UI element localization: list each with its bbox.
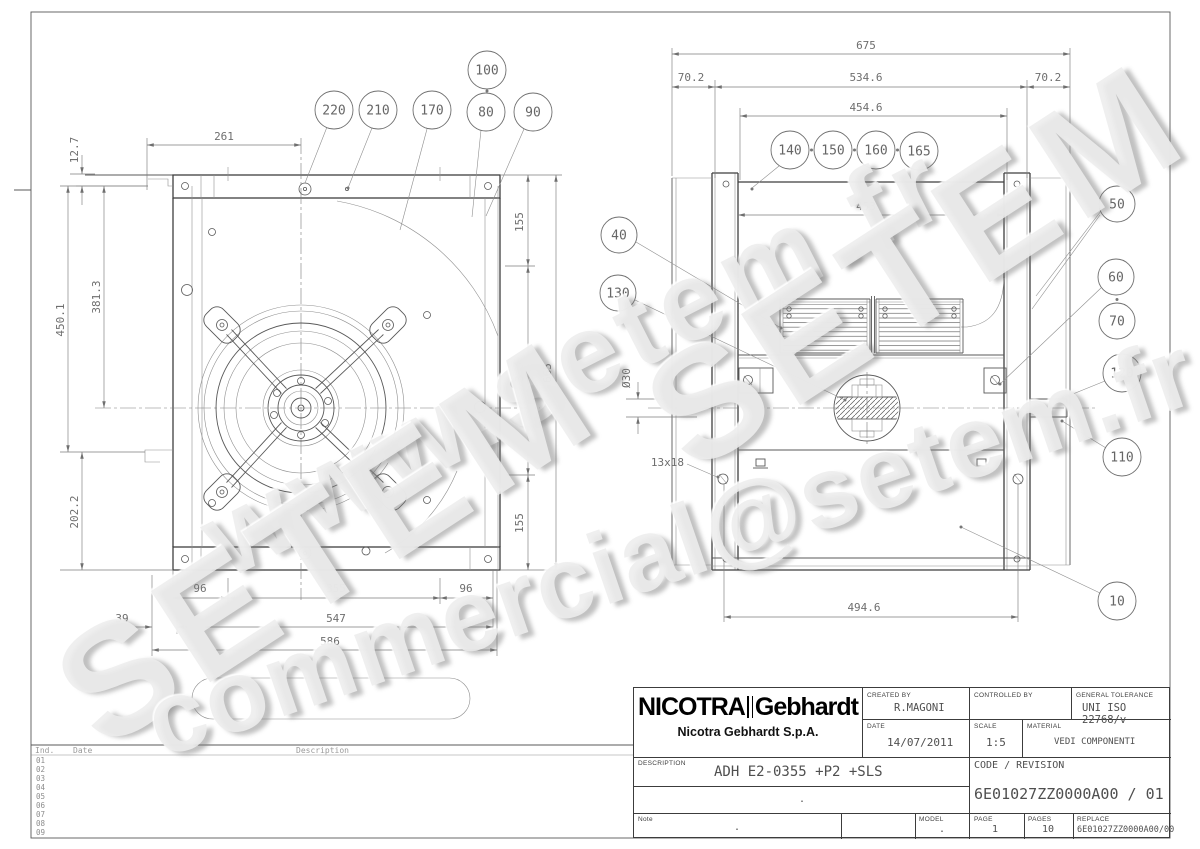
title-block: NICOTRAGebhardt Nicotra Gebhardt S.p.A. …: [633, 687, 1170, 838]
replace-value: 6E01027ZZ0000A00/00: [1077, 825, 1174, 835]
dim-534-6: 534.6: [849, 71, 882, 84]
svg-text:100: 100: [475, 64, 498, 79]
scale-label: SCALE: [974, 723, 997, 730]
dim-155-bottom: 155: [513, 513, 526, 533]
pages-label: PAGES: [1028, 816, 1051, 823]
dim-39: 39: [115, 612, 128, 625]
balloon-70: 70: [1099, 303, 1135, 339]
svg-text:10: 10: [1109, 595, 1125, 610]
svg-text:80: 80: [478, 106, 494, 121]
revision-row: 07: [36, 810, 45, 819]
balloon-90: 90: [514, 93, 552, 131]
dim-96-right: 96: [459, 582, 472, 595]
dim-12-7: 12.7: [68, 137, 81, 164]
dim-675: 675: [856, 39, 876, 52]
svg-text:130: 130: [606, 287, 629, 302]
date-value: 14/07/2011: [887, 736, 953, 749]
dim-494-6: 494.6: [847, 601, 880, 614]
dim-381-3: 381.3: [90, 280, 103, 313]
volute-arcs: [337, 201, 498, 553]
balloon-60: 60: [1098, 259, 1134, 295]
model-value: .: [939, 824, 945, 835]
front-view-balloons: 220 210 170 100 80 90: [305, 51, 552, 230]
balloon-160: 160: [857, 131, 895, 169]
pages-value: 10: [1042, 824, 1054, 835]
revision-row: 04: [36, 783, 45, 792]
dim-450-1: 450.1: [54, 303, 67, 336]
balloon-165: 165: [900, 132, 938, 170]
balloon-220: 220: [315, 91, 353, 129]
company-name: Nicotra Gebhardt S.p.A.: [634, 725, 862, 739]
dim-shaft-diameter: Ø30: [620, 368, 633, 388]
date-label: DATE: [867, 723, 885, 730]
dim-70-2-right: 70.2: [1035, 71, 1062, 84]
balloon-10: 10: [1098, 582, 1136, 620]
logo-primary: NICOTRA: [638, 693, 745, 721]
revision-row: 08: [36, 819, 45, 828]
revision-row: 01: [36, 756, 45, 765]
page-value: 1: [992, 824, 998, 835]
balloon-140: 140: [771, 131, 809, 169]
balloon-50: 50: [1099, 186, 1135, 222]
revision-row: 02: [36, 765, 45, 774]
svg-text:170: 170: [420, 104, 443, 119]
revision-row: 06: [36, 801, 45, 810]
material-label: MATERIAL: [1027, 723, 1061, 730]
dim-96-left: 96: [193, 582, 206, 595]
revision-header-ind: Ind.: [35, 746, 54, 755]
svg-text:50: 50: [1109, 198, 1125, 213]
code-label: CODE / REVISION: [974, 760, 1064, 771]
replace-label: REPLACE: [1077, 816, 1109, 823]
dim-261: 261: [214, 130, 234, 143]
revision-table: Ind. Date Description 01 02 03 04 05 06 …: [31, 745, 633, 838]
balloon-120: 120: [1103, 354, 1141, 392]
logo-divider: [747, 696, 753, 718]
label-stadium: [192, 678, 470, 719]
balloon-100: 100: [468, 51, 506, 89]
revision-row: 09: [36, 828, 45, 837]
svg-text:140: 140: [778, 144, 801, 159]
svg-text:165: 165: [907, 145, 930, 160]
description-line2: .: [799, 794, 805, 805]
code-value: 6E01027ZZ0000A00 / 01: [974, 785, 1164, 803]
dim-586: 586: [320, 635, 340, 648]
tolerance-label: GENERAL TOLERANCE: [1076, 692, 1153, 699]
dim-355-bottom: 355: [326, 582, 346, 595]
page-label: PAGE: [974, 816, 993, 823]
revision-row: 03: [36, 774, 45, 783]
balloon-130: 130: [600, 275, 636, 311]
description-label: DESCRIPTION: [638, 760, 686, 767]
scale-value: 1:5: [986, 736, 1006, 749]
created-by-value: R.MAGONI: [894, 702, 945, 714]
note-value: .: [734, 822, 740, 833]
svg-text:210: 210: [366, 104, 389, 119]
bearing-brackets: [739, 368, 1006, 393]
company-logo: NICOTRAGebhardt Nicotra Gebhardt S.p.A.: [634, 688, 862, 757]
revision-header-description: Description: [296, 746, 349, 755]
dim-665: 665: [541, 363, 554, 383]
panel-bolts: [182, 183, 492, 563]
balloon-210: 210: [359, 91, 397, 129]
svg-text:40: 40: [611, 229, 627, 244]
revision-row: 05: [36, 792, 45, 801]
balloon-170: 170: [413, 91, 451, 129]
svg-text:150: 150: [821, 144, 844, 159]
dim-70-2-left: 70.2: [678, 71, 705, 84]
dim-155-top: 155: [513, 212, 526, 232]
dim-453: 453: [856, 200, 876, 213]
balloon-150: 150: [814, 131, 852, 169]
side-view-casing: [672, 173, 1070, 570]
svg-text:70: 70: [1109, 315, 1125, 330]
drain-plugs: [718, 459, 1023, 484]
balloon-40: 40: [601, 217, 637, 253]
side-view: 675 70.2 534.6 70.2 454.6 453 494.6 Ø30: [600, 39, 1141, 622]
dim-slot-13x18: 13x18: [651, 456, 684, 469]
svg-text:160: 160: [864, 144, 887, 159]
svg-text:220: 220: [322, 104, 345, 119]
material-value: VEDI COMPONENTI: [1054, 737, 1135, 747]
balloon-80: 80: [467, 93, 505, 131]
front-view-casing: [76, 167, 500, 570]
front-view-dimensions: 261 12.7 450.1 381.3 202.2 96: [54, 130, 562, 656]
svg-text:120: 120: [1110, 367, 1133, 382]
dim-202-2: 202.2: [68, 495, 81, 528]
model-label: MODEL: [919, 816, 944, 823]
svg-text:90: 90: [525, 106, 541, 121]
balloon-110: 110: [1103, 438, 1141, 476]
front-view: 261 12.7 450.1 381.3 202.2 96: [54, 51, 562, 719]
dim-454-6: 454.6: [849, 101, 882, 114]
tolerance-value: UNI ISO 22768/v: [1082, 702, 1169, 726]
drawing-sheet: 261 12.7 450.1 381.3 202.2 96: [0, 0, 1200, 849]
controlled-by-label: CONTROLLED BY: [974, 692, 1033, 699]
motor-support-spider: [200, 303, 410, 514]
revision-header-date: Date: [73, 746, 92, 755]
created-by-label: CREATED BY: [867, 692, 911, 699]
description-value: ADH E2-0355 +P2 +SLS: [714, 764, 883, 780]
note-label: Note: [638, 816, 653, 823]
svg-text:60: 60: [1108, 271, 1124, 286]
dim-355-right: 355: [513, 362, 526, 382]
svg-text:110: 110: [1110, 451, 1133, 466]
dim-547: 547: [326, 612, 346, 625]
logo-secondary: Gebhardt: [755, 693, 858, 721]
impeller-wheel: [780, 296, 963, 353]
